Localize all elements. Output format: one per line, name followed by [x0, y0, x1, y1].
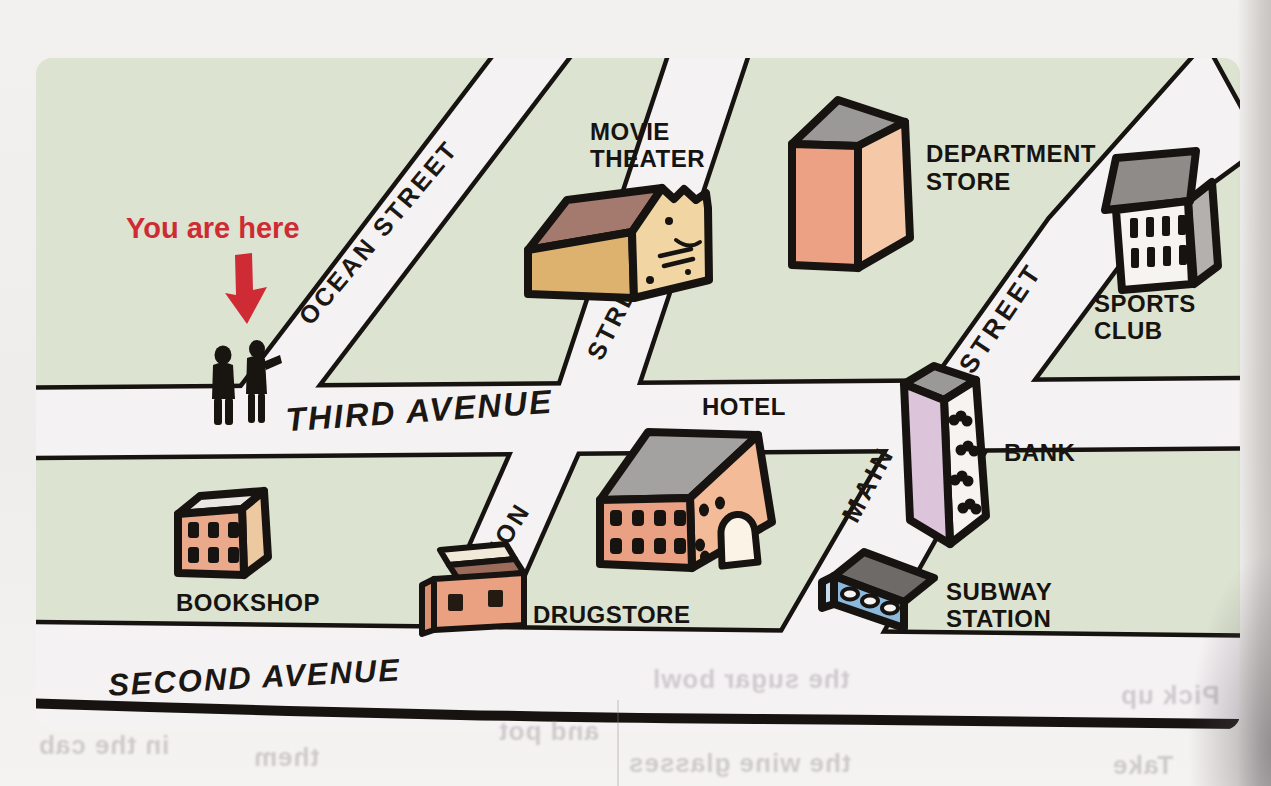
- sports-club-label-line1: SPORTS: [1094, 290, 1196, 317]
- subway-station-label-line2: STATION: [946, 605, 1051, 632]
- showthrough-rule: [617, 700, 619, 786]
- department-store-label-line1: DEPARTMENT: [926, 140, 1096, 167]
- subway-station-label-line1: SUBWAY: [946, 578, 1052, 605]
- bank-label: BANK: [1004, 439, 1075, 466]
- showthrough-text: them: [253, 742, 319, 773]
- page-corner-shadow: [1181, 536, 1271, 786]
- drugstore-label: DRUGSTORE: [533, 601, 690, 628]
- showthrough-text: the sugar bowl: [652, 664, 849, 695]
- hotel-arch-door: [721, 514, 758, 566]
- bank-building: [904, 366, 986, 544]
- sports-club-label-line2: CLUB: [1094, 317, 1163, 344]
- showthrough-text: in the cab: [38, 730, 169, 761]
- hotel-label: HOTEL: [702, 393, 786, 420]
- department-store-label-line2: STORE: [926, 168, 1011, 195]
- bookshop-label: BOOKSHOP: [176, 589, 320, 616]
- you-are-here-label: You are here: [126, 212, 300, 244]
- movie-theater-label-line2: THEATER: [590, 145, 705, 172]
- department-store-building: [792, 100, 910, 268]
- street-map: OCEAN STREET STREET UNION MAIN STREET TH…: [36, 58, 1240, 730]
- bookshop-building: [178, 491, 268, 575]
- street-map-canvas: OCEAN STREET STREET UNION MAIN STREET TH…: [36, 58, 1240, 730]
- showthrough-text: the wine glasses: [628, 748, 851, 779]
- showthrough-text: Take: [1112, 750, 1173, 781]
- movie-theater-label-line1: MOVIE: [590, 118, 670, 145]
- showthrough-text: and pot: [498, 716, 599, 747]
